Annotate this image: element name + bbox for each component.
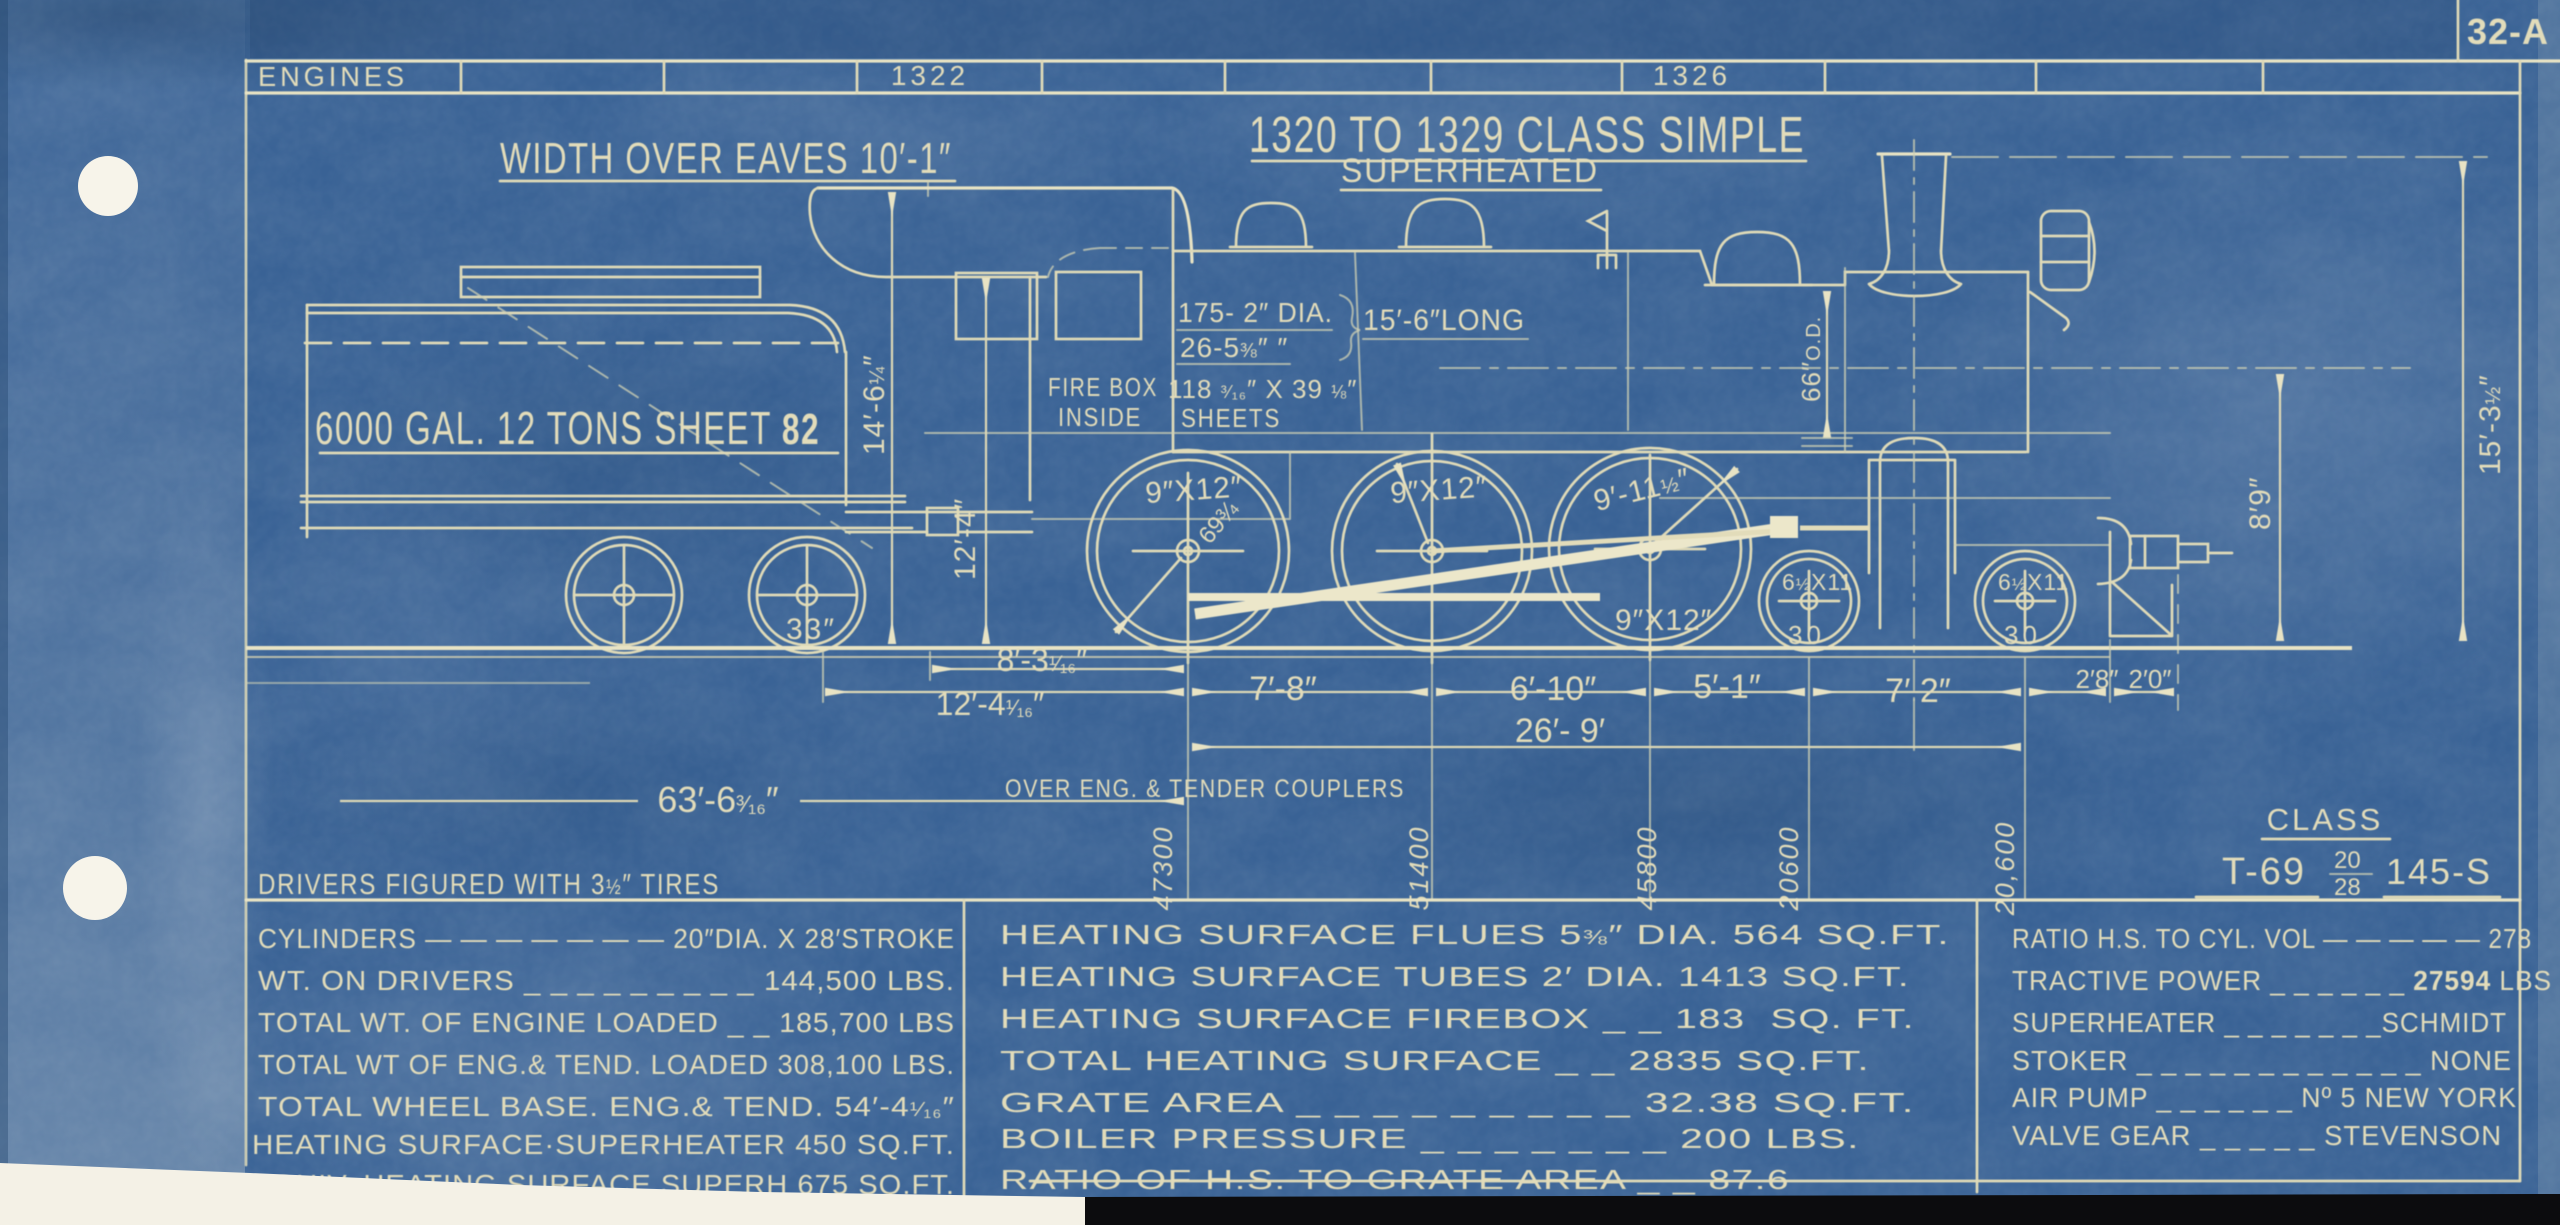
svg-text:HEATING SURFACE·SUPERHEATER 45: HEATING SURFACE·SUPERHEATER 450 SQ.FT. <box>252 1129 955 1160</box>
svg-text:SUPERHEATED: SUPERHEATED <box>1341 152 1599 190</box>
svg-text:2′0″: 2′0″ <box>2129 664 2172 694</box>
svg-text:32-A: 32-A <box>2467 11 2549 52</box>
svg-text:8′9″: 8′9″ <box>2244 476 2277 530</box>
svg-text:HEATING SURFACE TUBES 2′ DIA.: HEATING SURFACE TUBES 2′ DIA. 1413 SQ.FT… <box>1000 961 1910 992</box>
svg-text:30: 30 <box>2004 620 2041 650</box>
svg-text:118 ³⁄₁₆″ X 39 ⅛″: 118 ³⁄₁₆″ X 39 ⅛″ <box>1168 374 1357 404</box>
svg-text:28: 28 <box>2334 874 2361 901</box>
svg-text:GRATE AREA _ _ _ _ _ _ _ _ _ 3: GRATE AREA _ _ _ _ _ _ _ _ _ 32.38 SQ.FT… <box>1000 1087 1915 1118</box>
svg-text:51400: 51400 <box>1404 825 1434 910</box>
svg-text:RATIO OF H.S. TO GRATE AREA _: RATIO OF H.S. TO GRATE AREA _ _ 87.6 <box>1000 1164 1790 1195</box>
svg-text:CYLINDERS — — — — — — — 20″DIA: CYLINDERS — — — — — — — 20″DIA. X 28′STR… <box>258 923 955 954</box>
svg-text:SUPERHEATER _ _ _ _ _ _ _SCHM: SUPERHEATER _ _ _ _ _ _ _SCHMIDT <box>2012 1007 2507 1038</box>
svg-text:6½X11: 6½X11 <box>1782 569 1853 595</box>
svg-text:9″X12″: 9″X12″ <box>1615 604 1712 637</box>
svg-text:RATIO H.S. TO CYL. VOL — — — —: RATIO H.S. TO CYL. VOL — — — — — 278 <box>2012 923 2532 954</box>
svg-text:WT. ON DRIVERS _ _ _ _ _ _ _ _: WT. ON DRIVERS _ _ _ _ _ _ _ _ _ 144,500… <box>258 965 955 996</box>
svg-text:45800: 45800 <box>1632 825 1662 910</box>
svg-text:DRIVERS FIGURED WITH 3½″ TIRES: DRIVERS FIGURED WITH 3½″ TIRES <box>258 869 720 901</box>
svg-text:5′-1″: 5′-1″ <box>1693 668 1761 706</box>
svg-text:TOTAL WHEEL BASE. ENG.& TEND.: TOTAL WHEEL BASE. ENG.& TEND. 54′-4¹⁄₁₆″ <box>258 1091 955 1122</box>
svg-text:47300: 47300 <box>1148 825 1178 910</box>
svg-text:6½X11: 6½X11 <box>1998 569 2069 595</box>
svg-text:1322: 1322 <box>891 60 969 91</box>
svg-text:26-5⅜″ ″: 26-5⅜″ ″ <box>1180 332 1288 363</box>
svg-text:WIDTH OVER EAVES 10′-1″: WIDTH OVER EAVES 10′-1″ <box>500 134 952 183</box>
svg-text:6000 GAL. 12 TONS SHEET 82: 6000 GAL. 12 TONS SHEET 82 <box>315 402 820 454</box>
svg-text:145-S: 145-S <box>2386 851 2492 892</box>
svg-text:33″: 33″ <box>786 613 836 646</box>
svg-text:T-69: T-69 <box>2222 851 2306 893</box>
svg-text:STOKER _ _ _ _ _ _ _ _ _ _ _ _: STOKER _ _ _ _ _ _ _ _ _ _ _ _ NONE <box>2012 1045 2512 1076</box>
svg-text:TOTAL WT OF ENG.& TEND. LOADED: TOTAL WT OF ENG.& TEND. LOADED 308,100 L… <box>258 1049 955 1080</box>
svg-text:TOTAL HEATING SURFACE _ _ 2835: TOTAL HEATING SURFACE _ _ 2835 SQ.FT. <box>1000 1045 1870 1076</box>
svg-text:20: 20 <box>2334 847 2361 874</box>
svg-text:2′8″: 2′8″ <box>2076 664 2119 694</box>
svg-text:6′-10″: 6′-10″ <box>1510 670 1596 708</box>
svg-text:26′- 9′: 26′- 9′ <box>1515 712 1605 750</box>
svg-text:20,600: 20,600 <box>1990 821 2020 917</box>
svg-text:AIR PUMP _ _ _ _ _ _ Nº 5 NEW: AIR PUMP _ _ _ _ _ _ Nº 5 NEW YORK <box>2012 1082 2517 1113</box>
svg-text:30: 30 <box>1788 620 1825 650</box>
svg-text:9″X12″: 9″X12″ <box>1389 470 1488 510</box>
svg-text:TRACTIVE POWER _ _ _ _ _ _ 275: TRACTIVE POWER _ _ _ _ _ _ 27594 LBS <box>2012 965 2552 996</box>
svg-text:7′ 2″: 7′ 2″ <box>1885 672 1951 710</box>
svg-text:ENGINES: ENGINES <box>258 61 408 92</box>
svg-text:VALVE GEAR _ _ _ _ _ STEVENSON: VALVE GEAR _ _ _ _ _ STEVENSON <box>2012 1120 2502 1151</box>
svg-text:SHEETS: SHEETS <box>1181 403 1281 433</box>
svg-text:HEATING SURFACE FIREBOX _ _ 18: HEATING SURFACE FIREBOX _ _ 183 SQ. FT. <box>1000 1003 1915 1034</box>
svg-text:OVER ENG. & TENDER COUPLERS: OVER ENG. & TENDER COUPLERS <box>1005 775 1405 803</box>
svg-text:INSIDE: INSIDE <box>1058 402 1142 432</box>
svg-text:175- 2″ DIA.: 175- 2″ DIA. <box>1178 297 1333 328</box>
svg-text:1326: 1326 <box>1653 60 1731 91</box>
svg-text:15′-6″LONG: 15′-6″LONG <box>1363 304 1525 337</box>
svg-text:FIRE BOX: FIRE BOX <box>1048 372 1158 402</box>
svg-text:TOTAL WT. OF ENGINE LOADED _ _: TOTAL WT. OF ENGINE LOADED _ _ 185,700 L… <box>258 1007 955 1038</box>
svg-text:HEATING SURFACE FLUES 5⅜″ DIA.: HEATING SURFACE FLUES 5⅜″ DIA. 564 SQ.FT… <box>1000 919 1950 950</box>
svg-text:CLASS: CLASS <box>2267 802 2384 837</box>
svg-text:7′-8″: 7′-8″ <box>1249 670 1317 708</box>
svg-text:BOILER PRESSURE _ _ _ _ _ _ _: BOILER PRESSURE _ _ _ _ _ _ _ 200 LBS. <box>1000 1123 1860 1154</box>
svg-text:12′-4″: 12′-4″ <box>949 498 982 580</box>
